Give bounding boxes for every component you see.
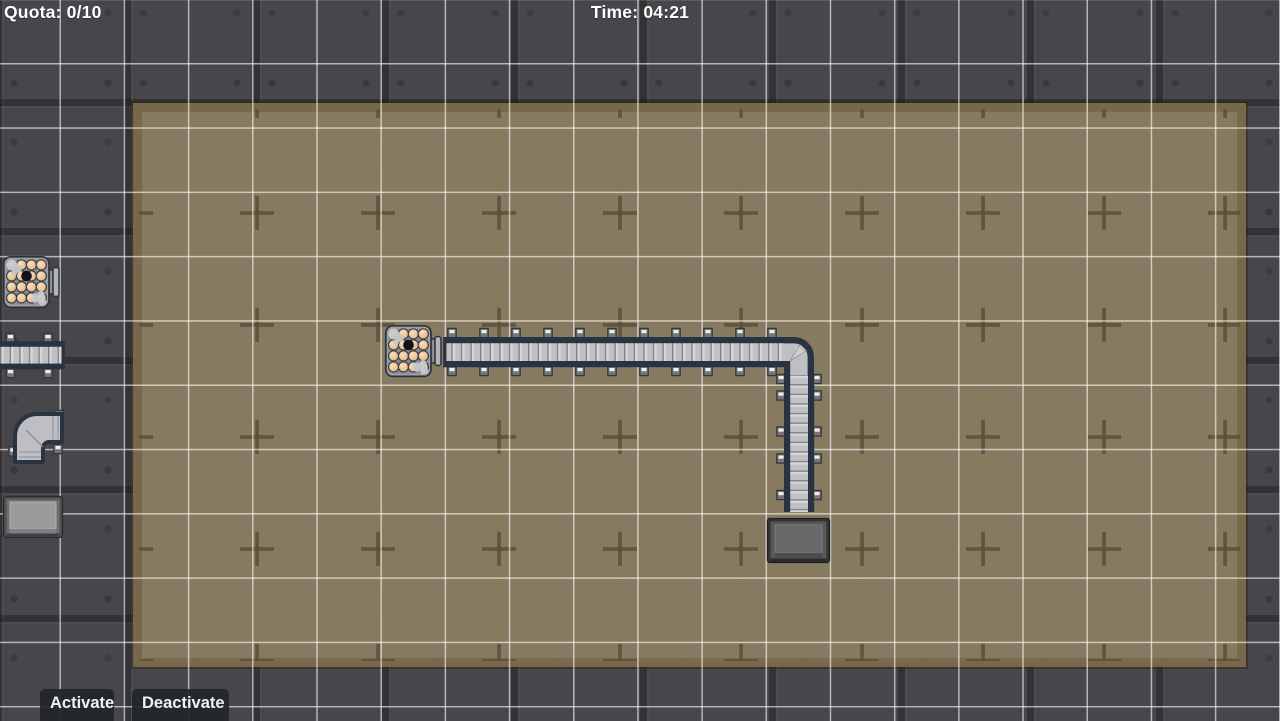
game-viewport: Quota: 0/10 Time: 04:21 Activate Deactiv… bbox=[0, 0, 1280, 721]
activate-button[interactable]: Activate bbox=[40, 689, 114, 721]
quota-label: Quota: 0/10 bbox=[4, 2, 102, 23]
machine-conveyor-corner[interactable] bbox=[784, 337, 814, 375]
palette-item-conveyor-corner[interactable] bbox=[9, 410, 63, 462]
machine-conveyor-vertical[interactable] bbox=[777, 357, 821, 512]
deactivate-button[interactable]: Deactivate bbox=[132, 689, 229, 721]
palette-item-log-source[interactable] bbox=[4, 257, 59, 308]
palette-item-conveyor-straight[interactable] bbox=[0, 333, 65, 377]
time-label: Time: 04:21 bbox=[591, 2, 689, 23]
machine-log-source[interactable] bbox=[386, 326, 441, 377]
machine-conveyor-horizontal[interactable] bbox=[443, 328, 794, 375]
machine-bin[interactable] bbox=[768, 519, 830, 563]
palette-item-bin[interactable] bbox=[4, 497, 63, 538]
machine-sprites-layer bbox=[0, 0, 1280, 721]
